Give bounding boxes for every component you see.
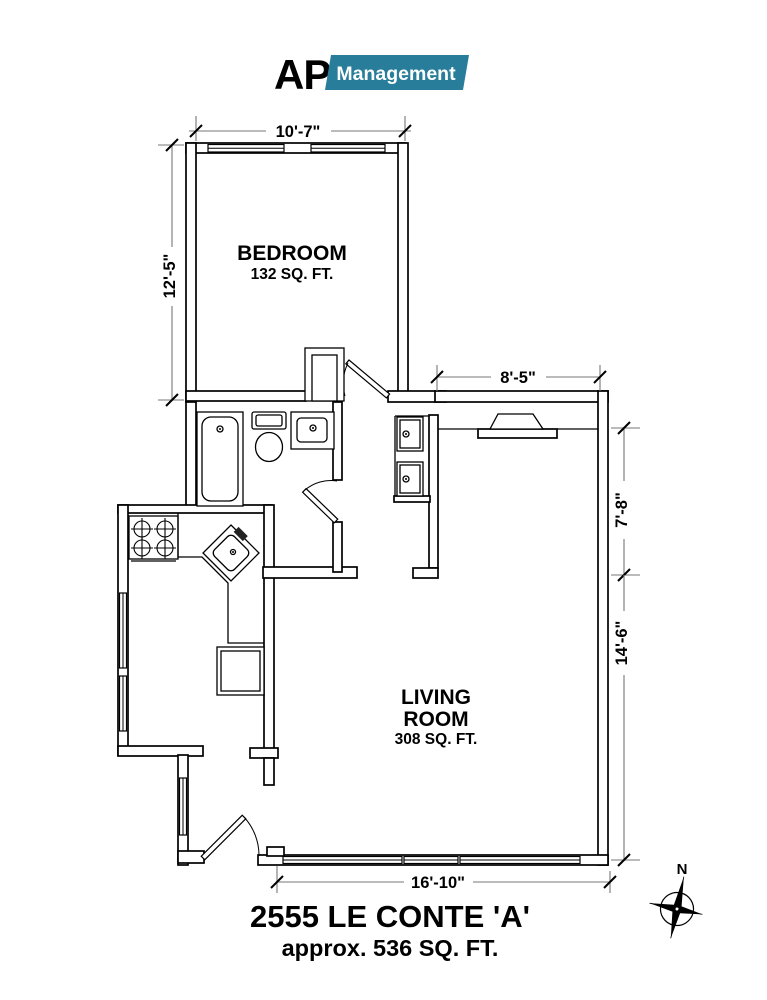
- stove: [129, 516, 178, 561]
- svg-text:12'-5": 12'-5": [161, 254, 179, 299]
- svg-text:7'-8": 7'-8": [613, 492, 631, 528]
- entry-threshold: [267, 847, 284, 856]
- svg-text:10'-7": 10'-7": [276, 123, 321, 141]
- dim-right-upper: 7'-8": [611, 422, 640, 581]
- svg-text:14'-6": 14'-6": [613, 621, 631, 666]
- bedroom-area-label: 132 SQ. FT.: [251, 266, 334, 283]
- living-top-wall: [435, 391, 608, 402]
- floor-plan-drawing: AP Management: [0, 0, 767, 1000]
- bedroom-door: [343, 360, 389, 398]
- kitchen-counter-edge: [178, 513, 264, 643]
- dim-right-lower: 14'-6": [611, 575, 640, 866]
- bedroom-label: BEDROOM: [237, 242, 347, 265]
- bedroom-left-wall: [186, 143, 196, 402]
- entry-wall-cap: [178, 851, 204, 863]
- dim-bedroom-width: 10'-7": [189, 116, 411, 141]
- plan-area: approx. 536 SQ. FT.: [282, 935, 499, 961]
- dim-bedroom-depth: 12'-5": [158, 139, 184, 406]
- kitchen-top-wall: [118, 505, 272, 513]
- fireplace-hearth: [478, 429, 557, 438]
- walls: [118, 143, 608, 865]
- bath-right-wall-lower: [333, 522, 342, 572]
- living-room-area-label: 308 SQ. FT.: [395, 731, 478, 748]
- living-room-label-1: LIVING: [401, 686, 471, 709]
- kitchen-right-wall-cap: [250, 748, 278, 758]
- svg-text:8'-5": 8'-5": [500, 369, 536, 387]
- utility-closet-bottom-wall: [394, 496, 430, 502]
- bathroom-door: [303, 481, 338, 523]
- floor-plan-page: AP Management: [0, 0, 767, 1000]
- living-left-wall: [429, 415, 438, 568]
- kitchen-sink: [203, 525, 259, 581]
- toilet: [252, 412, 286, 462]
- utility-closet: [395, 416, 429, 496]
- dim-living-top: 8'-5": [431, 365, 606, 391]
- living-right-wall: [598, 391, 608, 865]
- east-point: [676, 906, 703, 918]
- bathroom-sink: [291, 412, 334, 449]
- logo-prefix: AP: [274, 51, 330, 98]
- kitchen-right-wall: [264, 505, 274, 750]
- bedroom-right-wall: [398, 143, 408, 396]
- west-point: [649, 900, 678, 913]
- plan-address: 2555 LE CONTE 'A': [250, 899, 530, 934]
- compass-star: [643, 871, 709, 944]
- bath-left-wall: [186, 402, 196, 508]
- logo: AP Management: [274, 51, 469, 98]
- north-label: N: [677, 861, 688, 878]
- kitchen-right-wall-stub: [264, 758, 274, 785]
- svg-text:16'-10": 16'-10": [411, 874, 465, 892]
- title-block: 2555 LE CONTE 'A' approx. 536 SQ. FT.: [250, 899, 530, 961]
- bathtub: [197, 412, 243, 506]
- bedroom-closet: [305, 348, 344, 401]
- refrigerator: [217, 647, 264, 695]
- entry-door: [201, 815, 259, 860]
- hall-bottom-wall: [263, 567, 357, 578]
- dim-bottom: 16'-10": [271, 866, 616, 893]
- bedroom-bottom-wall: [186, 391, 306, 401]
- compass-rose: N: [643, 861, 709, 944]
- living-room-label-2: ROOM: [403, 708, 468, 731]
- fireplace: [438, 414, 598, 438]
- kitchen-bottom-wall: [118, 746, 203, 756]
- logo-name: Management: [336, 63, 456, 85]
- living-left-wall-cap: [413, 568, 438, 578]
